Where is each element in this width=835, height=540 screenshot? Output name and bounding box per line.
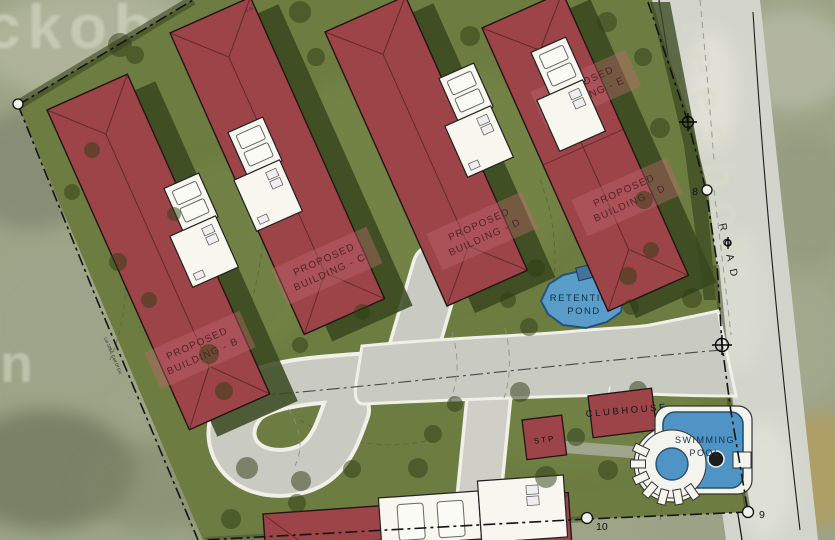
point-8-label: 8 [692, 186, 698, 198]
site-plan-screenshot: ckobor n reesbor ROAD [0, 0, 835, 540]
swimming-pool-label-line2: POOL [689, 448, 720, 458]
pool-steps [733, 452, 751, 468]
point-9-label: 9 [759, 509, 765, 521]
swimming-pool-label-line1: SWIMMING [675, 435, 735, 445]
stp-building: STP [522, 415, 567, 460]
spa-pool [656, 448, 688, 480]
site-plan-drawing: ckobor n reesbor ROAD [0, 0, 835, 540]
point-10-label: 10 [596, 521, 608, 533]
retention-pond-label-line2: POND [567, 306, 600, 317]
street-name-watermark-left: n [0, 334, 33, 394]
